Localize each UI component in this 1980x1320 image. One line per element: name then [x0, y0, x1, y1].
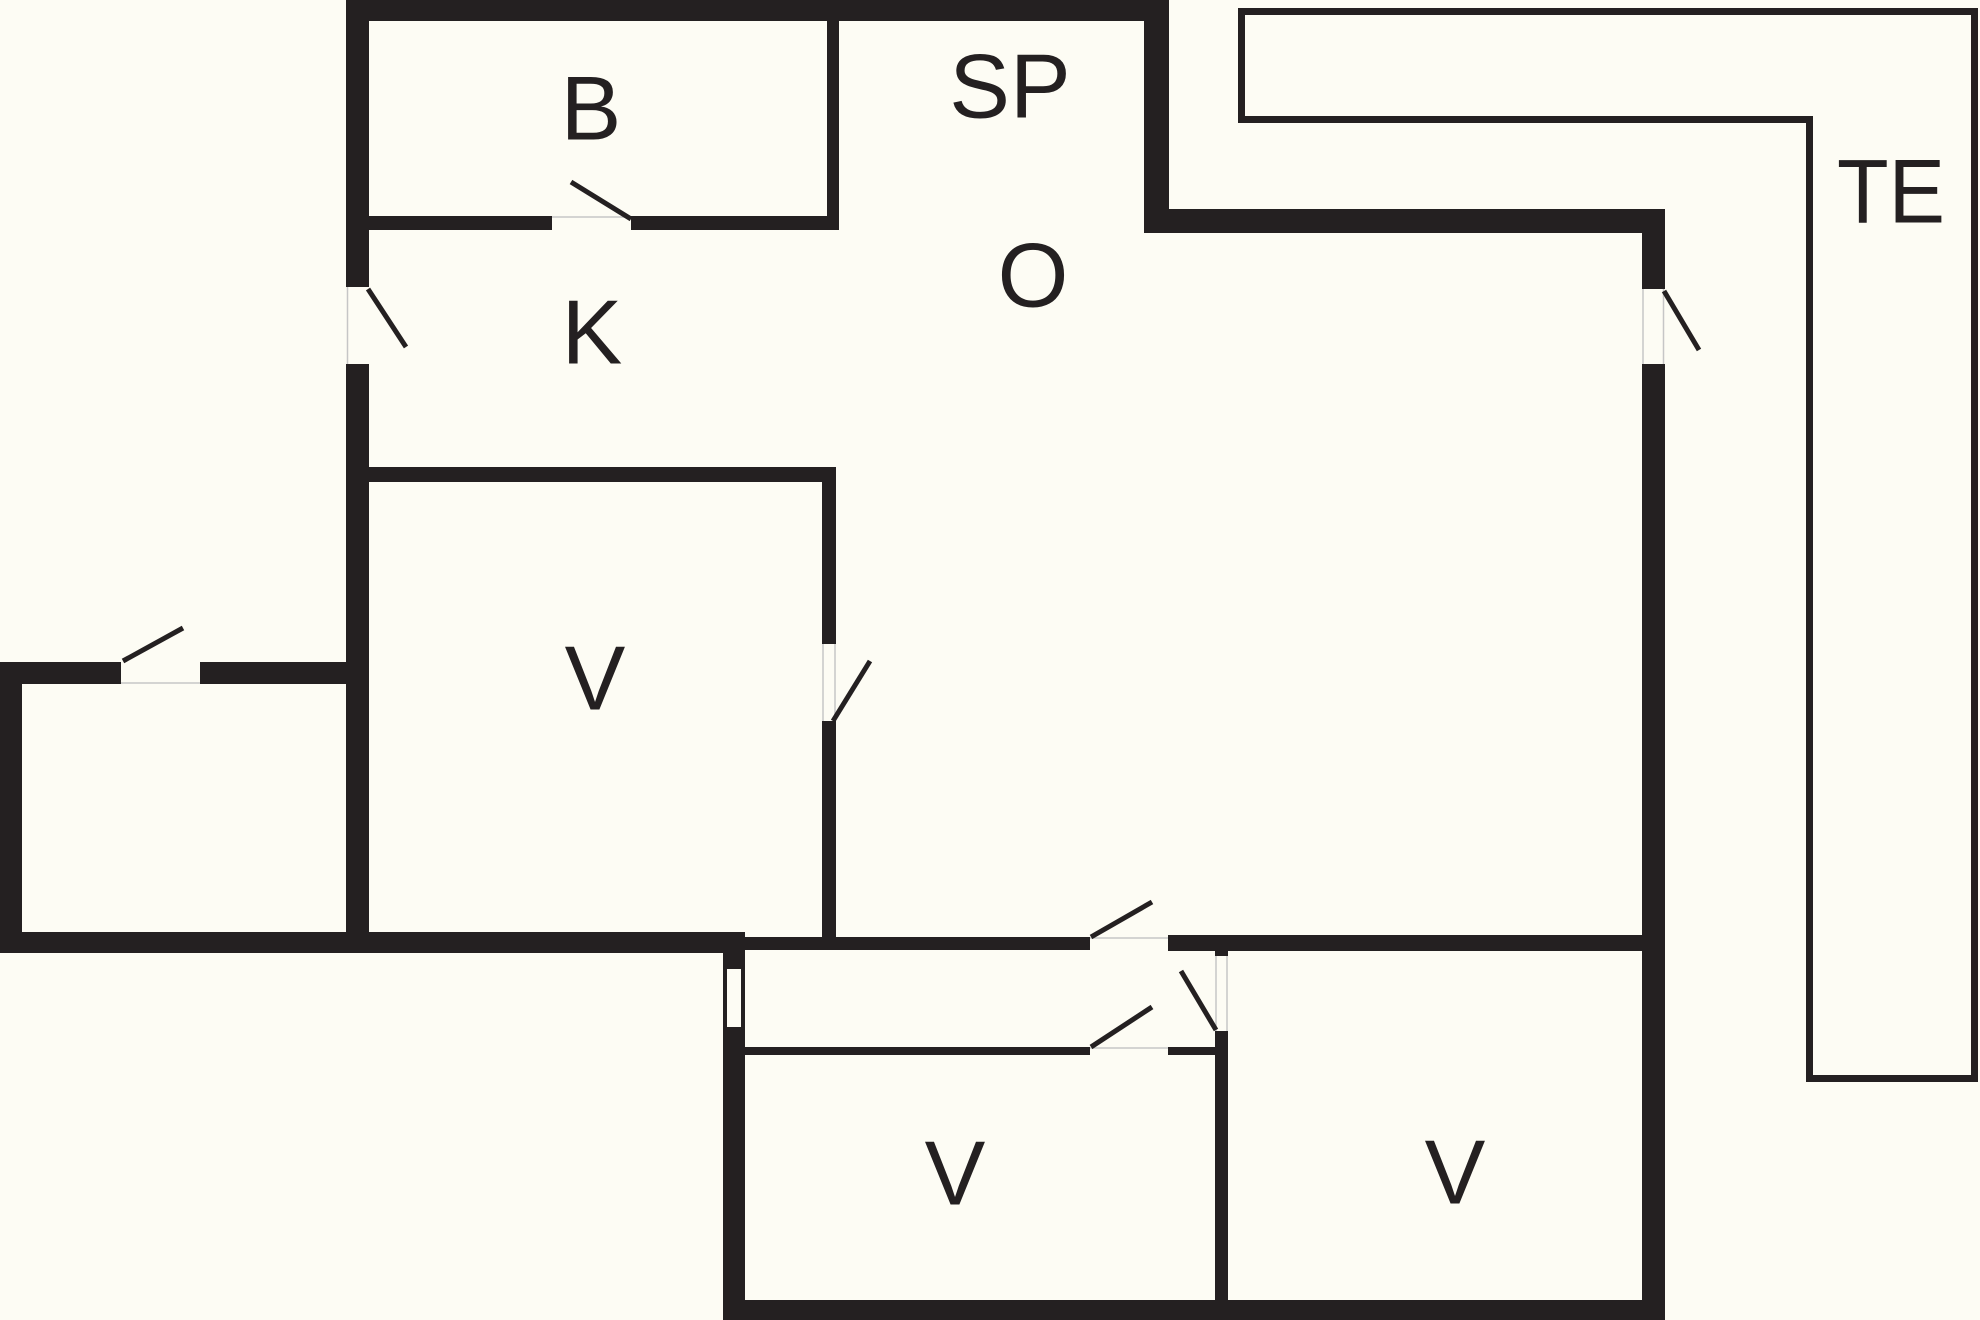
- svg-text:B: B: [561, 58, 622, 159]
- svg-text:V: V: [565, 628, 626, 729]
- svg-text:V: V: [925, 1123, 986, 1224]
- svg-text:TE: TE: [1837, 141, 1945, 242]
- svg-text:SP: SP: [949, 36, 1070, 137]
- svg-text:V: V: [1425, 1122, 1486, 1223]
- svg-text:K: K: [562, 282, 623, 383]
- svg-text:O: O: [998, 225, 1069, 326]
